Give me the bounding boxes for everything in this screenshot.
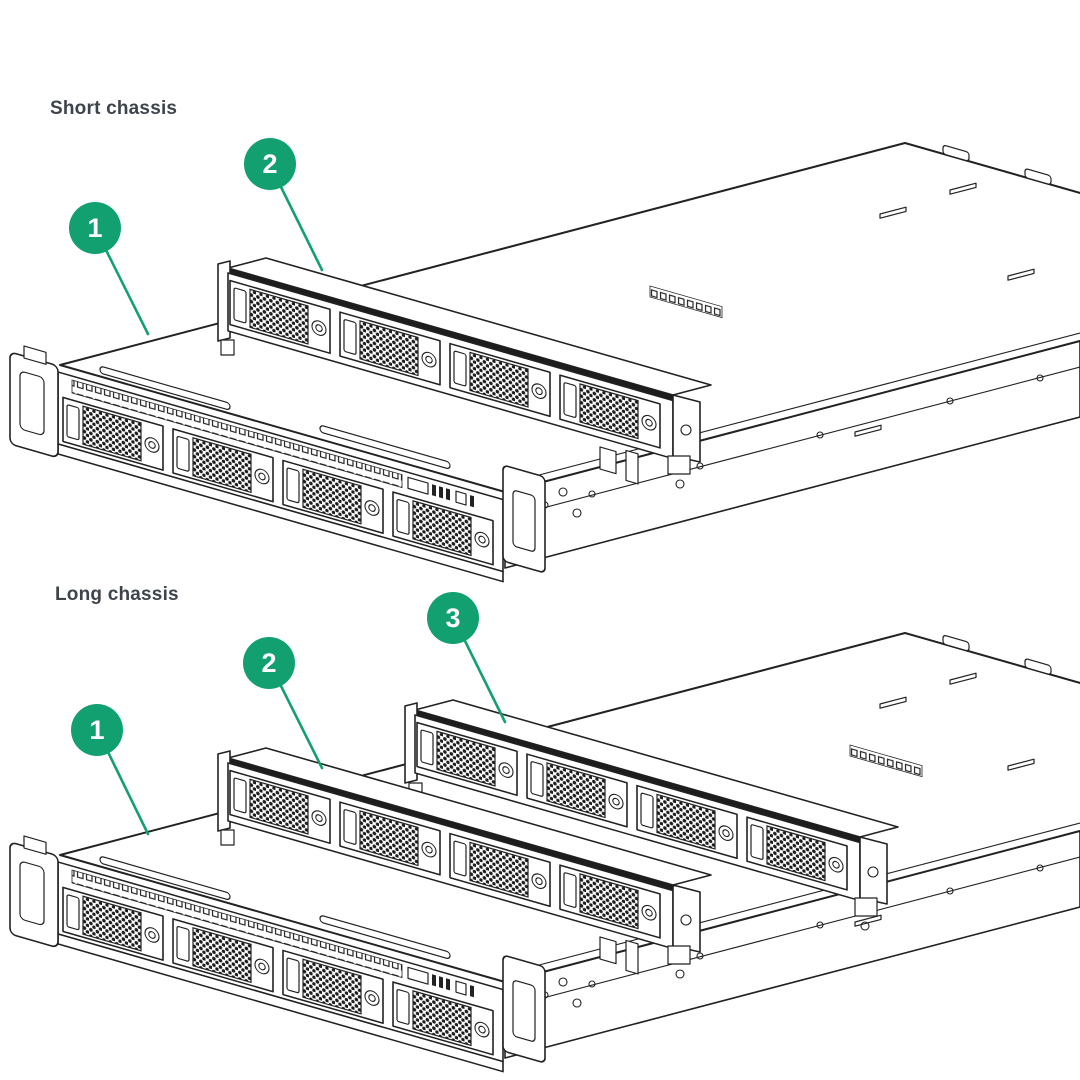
callout-long-2: 2: [243, 637, 295, 689]
short-chassis-drawing: [10, 143, 1080, 582]
right-rack-ear: [503, 955, 545, 1063]
left-rack-ear: [10, 342, 58, 458]
page: Short chassis Long chassis 1 2 1 2 3: [0, 0, 1080, 1080]
short-chassis-title: Short chassis: [50, 98, 177, 120]
left-rack-ear: [10, 832, 58, 948]
chassis-illustration: [0, 0, 1080, 1080]
callout-leader-line: [281, 187, 322, 270]
callout-leader-line: [106, 250, 148, 334]
callout-leader-line: [108, 752, 148, 834]
long-chassis-title: Long chassis: [55, 584, 179, 606]
callout-short-1: 1: [69, 202, 121, 254]
callout-short-2: 2: [244, 138, 296, 190]
right-rack-ear: [503, 465, 545, 573]
callout-long-1: 1: [71, 704, 123, 756]
callout-long-3: 3: [427, 592, 479, 644]
long-chassis-drawing: [10, 633, 1080, 1072]
